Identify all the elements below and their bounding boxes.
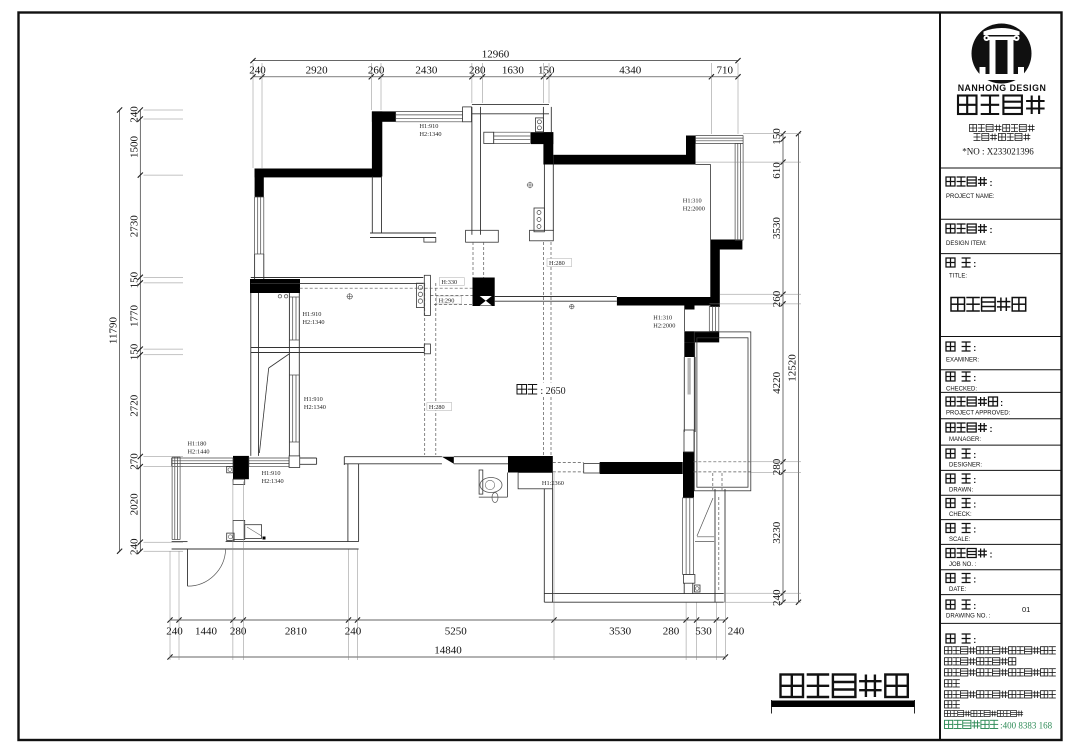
svg-text:240: 240 [771,589,783,606]
svg-text:H1:910: H1:910 [304,396,323,403]
svg-text:4220: 4220 [771,371,783,394]
svg-text:H1:310: H1:310 [653,315,672,322]
svg-text::: : [990,424,993,434]
svg-text:240: 240 [166,626,183,638]
svg-text:240: 240 [345,626,362,638]
svg-text:280: 280 [230,626,247,638]
svg-text:H1:310: H1:310 [683,198,702,205]
svg-text::: : [1000,398,1003,408]
svg-text:DATE:: DATE: [949,587,967,593]
svg-text:2920: 2920 [306,65,329,77]
svg-text:150: 150 [771,128,783,145]
svg-text::: : [973,373,976,383]
svg-text:240: 240 [728,626,745,638]
svg-text:1440: 1440 [195,626,218,638]
svg-text:: 2650: : 2650 [540,386,565,397]
svg-text:H2:2000: H2:2000 [683,205,705,212]
svg-text:240: 240 [128,106,140,123]
svg-text:530: 530 [695,626,712,638]
svg-text:PROJECT NAME:: PROJECT NAME: [946,194,995,200]
svg-text::: : [973,475,976,485]
svg-text::: : [973,343,976,353]
svg-text:280: 280 [771,458,783,475]
svg-text:150: 150 [128,343,140,360]
svg-text:260: 260 [368,65,385,77]
svg-text:DESIGNER:: DESIGNER: [949,463,982,469]
svg-text:CHECK:: CHECK: [949,512,972,518]
svg-text:3530: 3530 [609,626,632,638]
svg-text:H:280: H:280 [549,260,565,267]
svg-text:*NO : X233021396: *NO : X233021396 [962,147,1034,157]
svg-text:H2:1340: H2:1340 [303,319,325,326]
svg-text:2730: 2730 [128,215,140,238]
svg-text:H1:2360: H1:2360 [542,480,564,487]
svg-text:MANAGER:: MANAGER: [949,437,981,443]
svg-text:14840: 14840 [434,645,462,657]
svg-text:240: 240 [249,65,266,77]
svg-text:280: 280 [469,65,486,77]
svg-text:CHECKED:: CHECKED: [946,387,977,393]
svg-text:DRAWN:: DRAWN: [949,488,973,494]
svg-text:150: 150 [128,271,140,288]
svg-text:1770: 1770 [128,305,140,328]
svg-text::: : [973,635,976,645]
svg-text:DRAWING NO. :: DRAWING NO. : [946,614,991,620]
svg-text:DESIGN ITEM:: DESIGN ITEM: [946,241,987,247]
svg-text:1500: 1500 [128,136,140,159]
svg-text:3230: 3230 [771,521,783,544]
svg-text:H1:910: H1:910 [303,311,322,318]
svg-text::: : [990,225,993,235]
svg-text:2020: 2020 [128,493,140,516]
svg-text:JOB NO. :: JOB NO. : [949,562,977,568]
svg-text:150: 150 [538,65,555,77]
svg-text:5250: 5250 [445,626,468,638]
svg-text:H2:1340: H2:1340 [420,131,442,138]
svg-text:260: 260 [771,290,783,307]
svg-text::: : [973,500,976,510]
svg-text::: : [990,178,993,188]
svg-text:12520: 12520 [787,354,799,382]
svg-text:H1:180: H1:180 [188,441,207,448]
svg-text:H:330: H:330 [441,279,457,286]
svg-text:NANHONG DESIGN: NANHONG DESIGN [958,83,1047,93]
svg-text:2720: 2720 [128,394,140,417]
svg-text:EXAMINER:: EXAMINER: [946,358,979,364]
svg-text:SCALE:: SCALE: [949,537,971,543]
svg-text::: : [973,575,976,585]
svg-text:610: 610 [771,162,783,179]
svg-text:240: 240 [128,538,140,555]
svg-text:3530: 3530 [771,217,783,240]
svg-text::: : [973,525,976,535]
svg-text:TITLE:: TITLE: [949,274,967,280]
svg-text:2430: 2430 [415,65,438,77]
svg-text:710: 710 [716,65,733,77]
svg-text::: : [973,450,976,460]
svg-text:H2:1340: H2:1340 [262,478,284,485]
svg-text::: : [990,550,993,560]
svg-text:H1:910: H1:910 [420,123,439,130]
svg-text:PROJECT APPROVED:: PROJECT APPROVED: [946,411,1011,417]
svg-text:1630: 1630 [502,65,525,77]
svg-text::400 8383 168: :400 8383 168 [1000,721,1053,731]
svg-text:2810: 2810 [285,626,308,638]
svg-text:H2:1440: H2:1440 [188,448,210,455]
svg-text:4340: 4340 [619,65,642,77]
svg-text:H1:910: H1:910 [262,470,281,477]
svg-text:H2:1340: H2:1340 [304,404,326,411]
svg-text:H:280: H:280 [429,404,445,411]
svg-text::: : [973,601,976,611]
svg-text::: : [973,259,976,269]
svg-text:11790: 11790 [108,317,120,345]
svg-text:H:290: H:290 [439,298,455,305]
svg-text:H2:2000: H2:2000 [653,322,675,329]
svg-text:01: 01 [1022,605,1030,614]
svg-text:270: 270 [128,453,140,470]
svg-text:12960: 12960 [482,49,510,61]
svg-text:280: 280 [663,626,680,638]
